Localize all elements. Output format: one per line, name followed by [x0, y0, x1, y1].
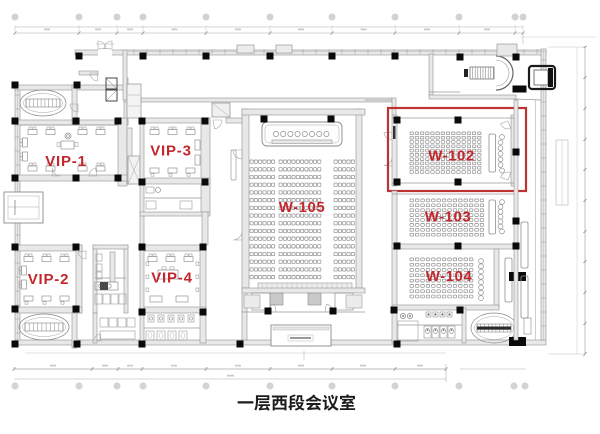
svg-text:W-103: W-103 — [425, 209, 471, 226]
svg-text:W-104: W-104 — [426, 268, 473, 285]
svg-text:VIP-2: VIP-2 — [28, 271, 70, 288]
svg-text:W-105: W-105 — [279, 199, 325, 216]
svg-text:VIP-3: VIP-3 — [150, 143, 192, 160]
svg-text:VIP-1: VIP-1 — [45, 153, 87, 170]
svg-text:W-102: W-102 — [428, 148, 474, 165]
svg-text:VIP-4: VIP-4 — [151, 270, 193, 287]
